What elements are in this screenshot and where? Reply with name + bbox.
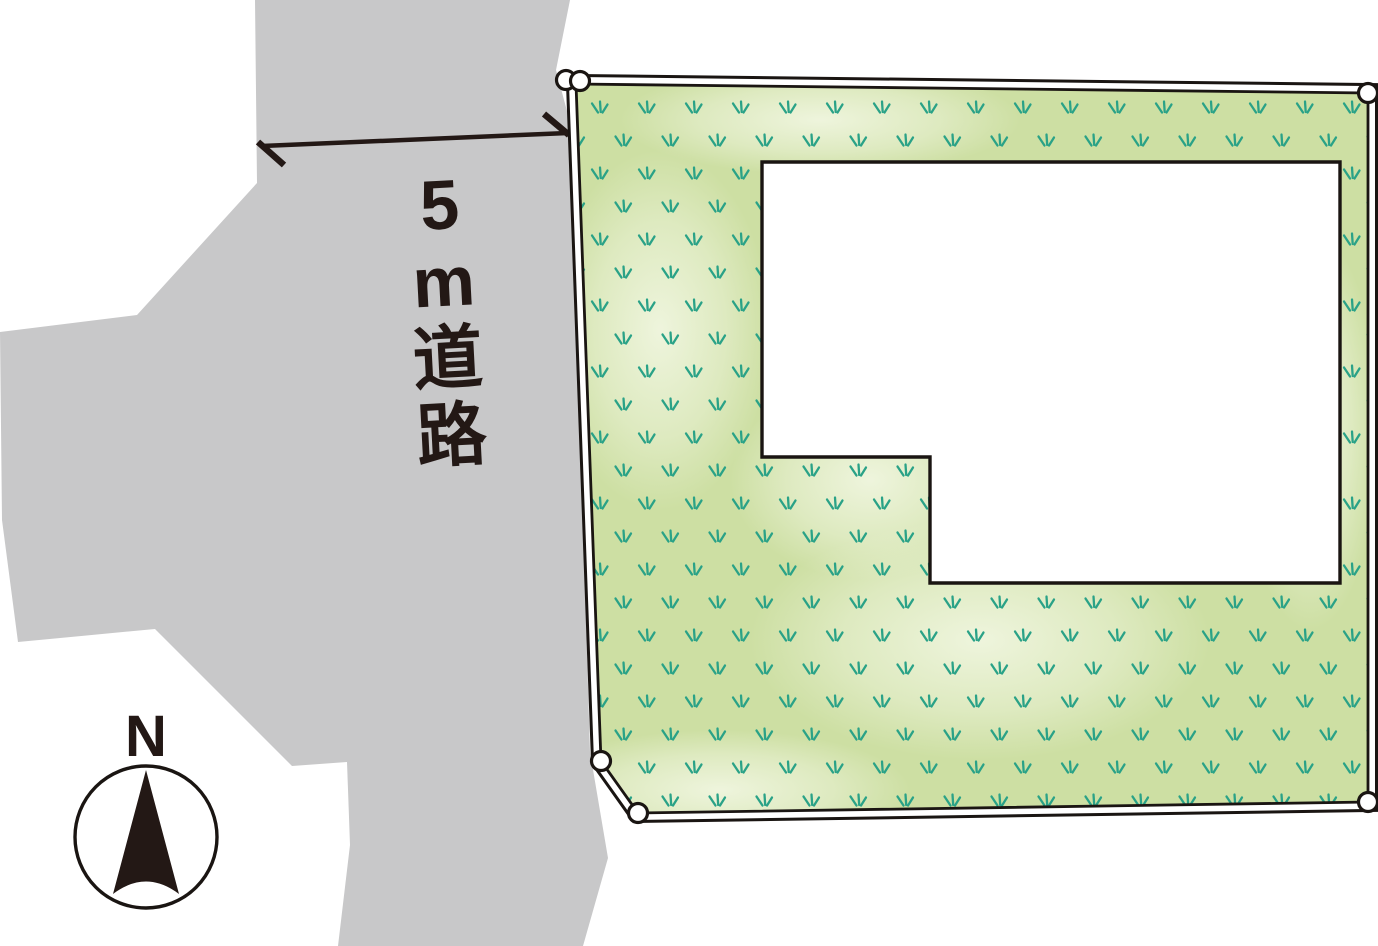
site-plan-canvas: 5 m 道 路 N (0, 0, 1378, 946)
compass-north-label: N (116, 708, 176, 766)
road-width-label: 5 m 道 路 (383, 171, 508, 470)
road-label-char-5: 5 (419, 173, 461, 238)
boundary-marker-top-right (1359, 84, 1378, 103)
boundary-marker-top-left-b (571, 72, 590, 91)
road-label-char-ro: 路 (415, 403, 488, 470)
lot-parcel (530, 65, 1378, 850)
boundary-marker-bottom-right (1359, 793, 1378, 812)
compass (75, 766, 217, 908)
boundary-marker-bottom-left-b (629, 804, 648, 823)
road-label-char-dou: 道 (411, 326, 484, 393)
road-label-char-m: m (411, 249, 476, 315)
boundary-marker-bottom-left-a (592, 752, 611, 771)
site-plan-drawing (0, 0, 1378, 946)
